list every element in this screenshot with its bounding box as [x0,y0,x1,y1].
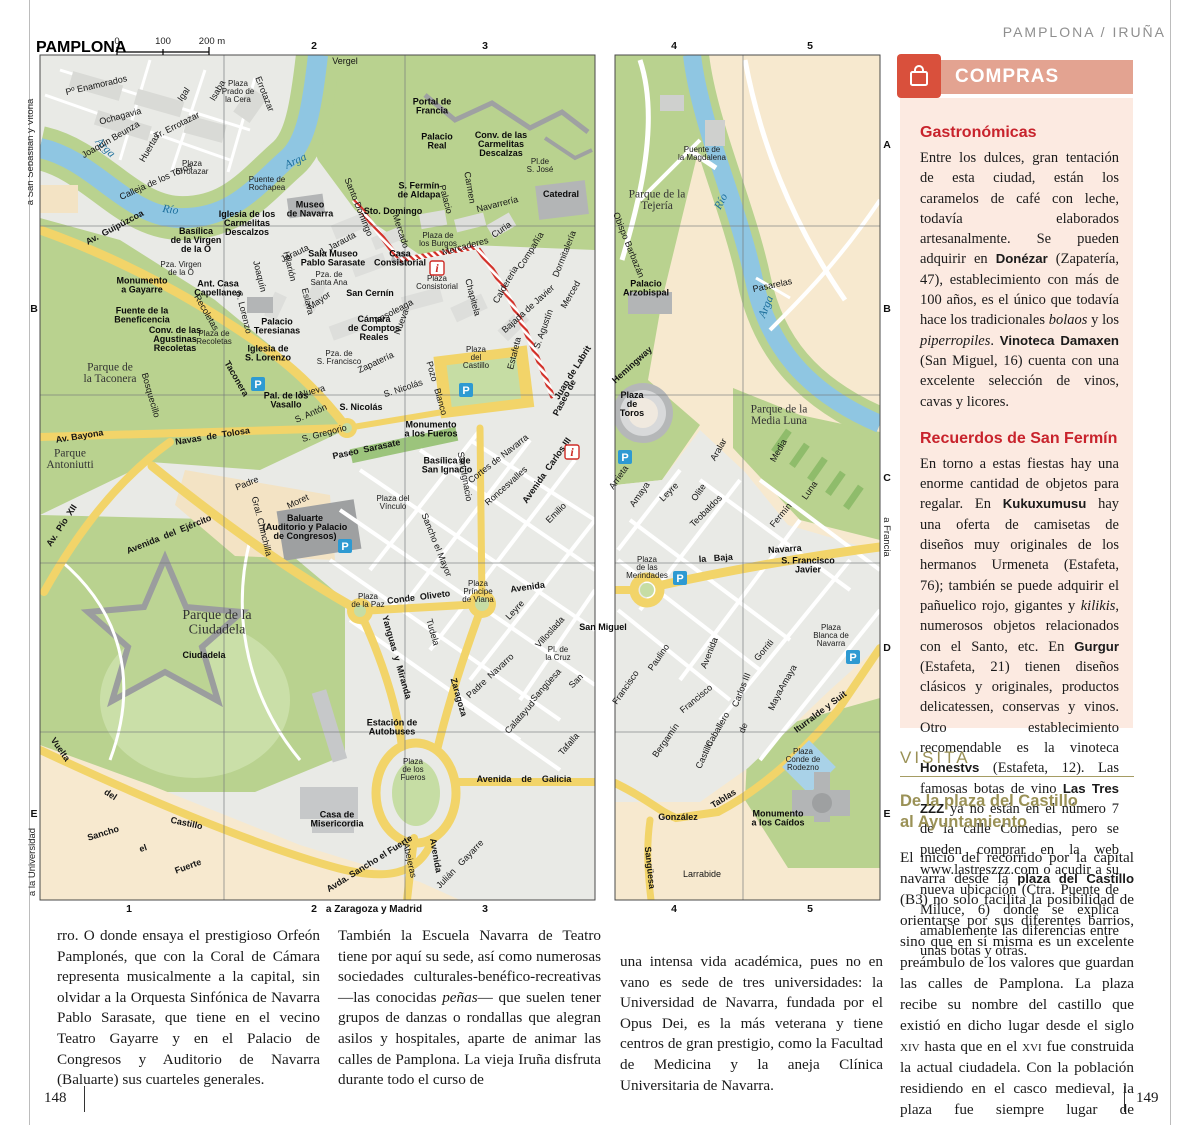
map-label: 5 [807,40,813,52]
parking-icon: P [618,450,632,464]
map-label: Plazade losFueros [401,757,426,782]
map-label: 2 [311,903,317,915]
map-label: 5 [807,903,813,915]
parking-icon: P [251,377,265,391]
compras-heading-recuerdos: Recuerdos de San Fermín [920,430,1119,448]
visita-title: VISITA [900,748,1134,777]
svg-text:P: P [341,541,348,553]
map-label: Basílica deSan Ignacio [422,456,473,475]
compras-heading-gastronomicas: Gastronómicas [920,124,1119,142]
map-label: 1 [126,903,132,915]
map-label: Larrabide [683,869,721,879]
map-label: Parque dela Taconera [84,361,137,385]
map-label: S. Fermínde Aldapa [398,181,442,200]
running-header: PAMPLONA / IRUÑA [1003,24,1166,40]
body-column-3: una intensa vida académica, pues no en v… [620,952,883,1096]
map-label: Puente deRochapea [249,175,286,192]
svg-text:P: P [621,452,628,464]
map-label: González [658,812,698,822]
map-label: Portal deFrancia [413,97,452,116]
shopping-bag-icon [897,54,941,98]
map-label: Río [161,203,180,217]
map-label: Pl. dela Cruz [545,645,570,662]
map-label: Plaza deRecoletas [196,329,232,346]
page-number-divider-right [1124,1086,1125,1112]
map-label: a San Sebastián y Vitoria [28,98,36,205]
page-edge-rule-right [1170,0,1171,1125]
visita-subtitle: De la plaza del Castillo al Ayuntamiento [900,791,1134,833]
map-label: A [883,139,891,151]
visita-section: VISITA De la plaza del Castillo al Ayunt… [900,748,1134,1125]
map-label: E [30,808,37,820]
map-label: B [30,303,38,315]
map-label: Conv. de lasCarmelitasDescalzas [475,130,527,158]
map-label: San Miguel [579,622,627,632]
map-label: E [883,808,890,820]
map-label: Ant. CasaCapellanes [194,279,242,298]
map-label: 3 [482,903,488,915]
map-label: D [883,642,891,654]
parking-icon: P [673,571,687,585]
map-label: Parque de laMedia Luna [751,403,808,427]
map-label: Iglesia deS. Lorenzo [245,344,292,363]
map-label: Sala MuseoPablo Sarasate [301,249,366,268]
info-icon: i [430,261,444,275]
map-label: Ciudadela [182,650,226,660]
page-number-divider-left [84,1086,85,1112]
map-label: 100 [155,36,171,47]
map-label: Puente dela Magdalena [678,145,727,162]
visita-text: El inicio del recorrido por la capital n… [900,847,1134,1125]
map-label: Avenida de Galicia [477,774,573,784]
map-label: Monumentoa los Fueros [404,420,457,439]
map-label: a Zaragoza y Madrid [326,904,422,915]
map-label: Plaza delos Burgos [419,231,457,248]
guidebook-page: PAMPLONA / IRUÑA [0,0,1200,1125]
map-label: Catedral [543,189,579,199]
map-label: Monumentoa los Caídos [751,809,804,828]
compras-text-gastronomicas: Entre los dulces, gran tentación de esta… [920,148,1119,412]
svg-text:P: P [676,573,683,585]
compras-title: COMPRAS [941,66,1059,88]
svg-text:P: P [254,379,261,391]
parking-icon: P [846,650,860,664]
map-label: Vergel [332,56,358,66]
map-label: 4 [671,40,677,52]
map-label: Estación deAutobuses [367,718,418,737]
body-column-1: rro. O donde ensaya el prestigioso Orfeó… [57,926,320,1091]
map-label: C [883,472,891,484]
compras-section-header: COMPRAS [941,60,1133,94]
map-label: Iglesia de losCarmelitasDescalzos [219,209,276,237]
map-label: 200 m [199,36,225,47]
map-label: B [883,303,891,315]
map-label: 3 [482,40,488,52]
map-label: 4 [671,903,677,915]
map-right-panel [613,55,880,900]
map-label: 0 [114,36,119,47]
map-scale-bar [117,47,209,55]
map-label: 2 [311,40,317,52]
parking-icon: P [338,539,352,553]
svg-text:P: P [462,385,469,397]
map-label: a la Universidad [28,828,38,896]
page-number-right: 149 [1136,1090,1159,1107]
map-label: Pza. deSanta Ana [311,270,348,287]
page-number-left: 148 [44,1090,67,1107]
pamplona-city-map: PAMPLONA0100200 m234512345ABCDEBEa San S… [28,30,895,920]
map-label: Fuente de laBeneficencia [114,306,171,325]
body-column-2: También la Escuela Navarra de Teatro tie… [338,926,601,1091]
map-label: S. Nicolás [339,402,382,412]
svg-text:P: P [849,652,856,664]
map-label: Conv. de lasAgustinasRecoletas [149,325,201,353]
info-icon: i [565,445,579,459]
map-label: PAMPLONA [36,39,127,56]
map-label: San Cernín [346,288,394,298]
map-label: a Francia [881,517,892,557]
compras-box: Gastronómicas Entre los dulces, gran ten… [900,98,1133,728]
map-label: Monumentoa Gayarre [117,276,168,295]
map-label: Plaza delVínculo [377,494,410,511]
map-label: Parque de laCiudadela [182,608,252,638]
parking-icon: P [459,383,473,397]
